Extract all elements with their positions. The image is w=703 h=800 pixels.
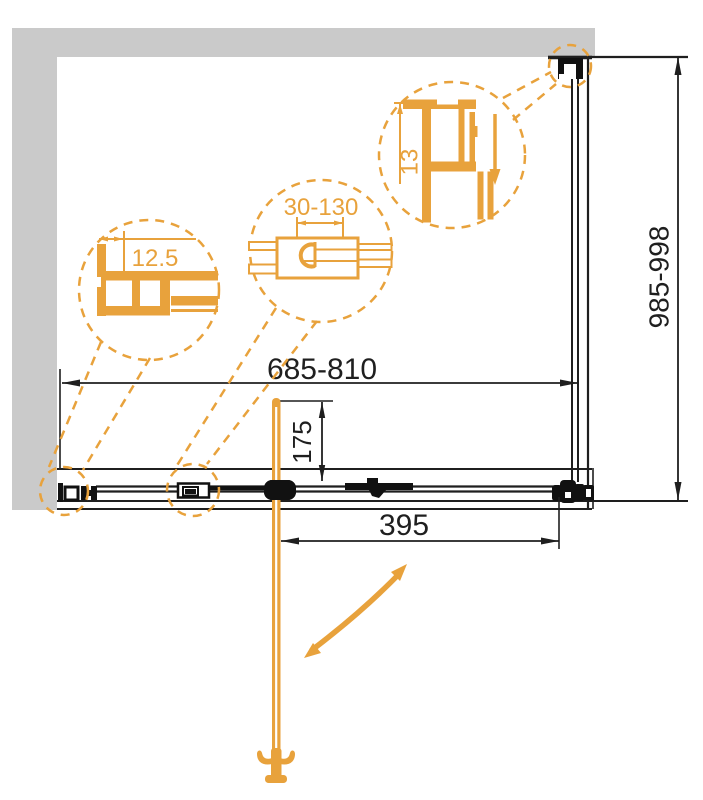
arrow-up-icon	[675, 57, 682, 75]
arrow-down-icon	[319, 465, 325, 481]
slider-bracket	[345, 478, 413, 498]
detail-top-profile: 13	[394, 100, 501, 223]
detail-top-profile-label: 13	[397, 149, 424, 176]
side-glass-panel	[572, 57, 593, 509]
shower-enclosure-diagram: 685-810 985-998 395 175	[0, 0, 703, 800]
top-corner-fitting	[548, 57, 688, 79]
door-roller	[264, 480, 296, 500]
wall-left-strip	[12, 28, 57, 510]
detail-adjustment-profile: 30-130	[249, 194, 392, 278]
arrow-right-icon	[541, 538, 559, 545]
wall-top-strip	[12, 28, 595, 57]
door-opening-dimension: 395	[281, 497, 559, 549]
arrow-up-icon	[319, 402, 325, 418]
handle-offset-label: 175	[287, 420, 317, 463]
arrow-down-icon	[675, 482, 682, 500]
arrow-left-icon	[281, 538, 299, 545]
handle-hook	[257, 748, 295, 783]
detail-wall-profile: 12.5	[97, 231, 218, 316]
arrow-left-icon	[62, 380, 80, 387]
door-opening-label: 395	[379, 509, 429, 542]
detail-wall-profile-label: 12.5	[132, 245, 179, 272]
height-dimension: 985-998	[583, 57, 688, 501]
detail-adjustment-label: 30-130	[284, 194, 359, 221]
door-swing-arrow	[304, 564, 407, 658]
height-dimension-label: 985-998	[644, 226, 675, 329]
wall-profile-fitting	[58, 483, 97, 502]
width-dimension-label: 685-810	[267, 353, 377, 386]
arrow-right-icon	[560, 380, 578, 387]
width-dimension: 685-810	[60, 353, 578, 468]
technical-drawing-page: 685-810 985-998 395 175	[0, 0, 703, 800]
